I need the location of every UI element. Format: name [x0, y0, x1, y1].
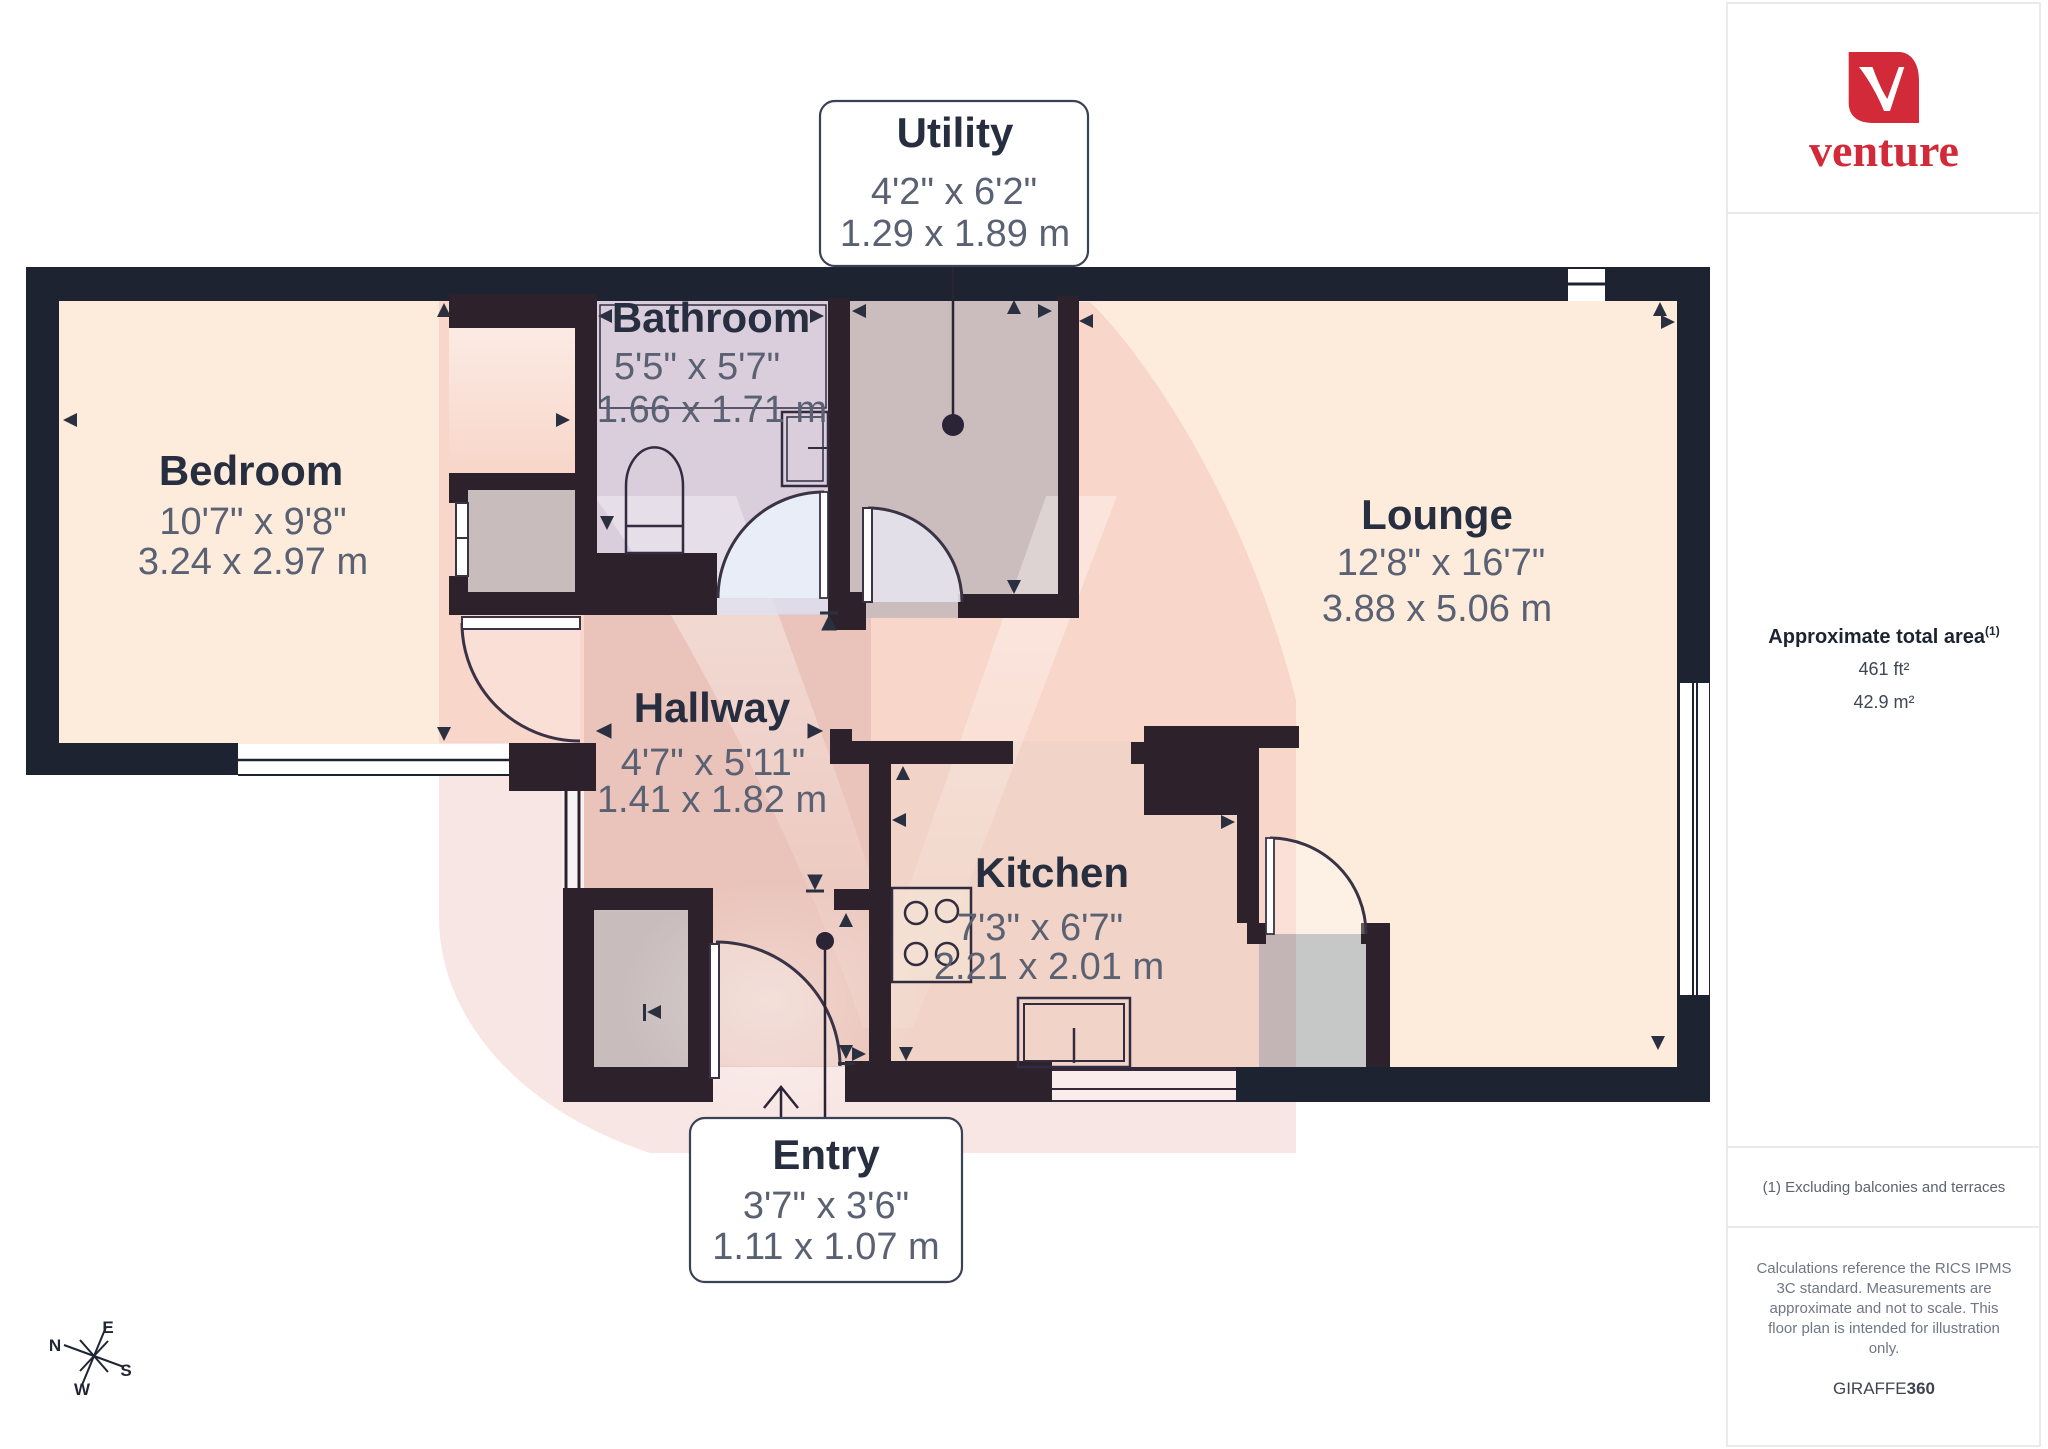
- svg-text:venture: venture: [1809, 125, 1959, 176]
- svg-text:Calculations reference the RIC: Calculations reference the RICS IPMS: [1756, 1260, 2011, 1277]
- svg-text:3C standard. Measurements are: 3C standard. Measurements are: [1776, 1280, 1991, 1297]
- svg-text:GIRAFFE360: GIRAFFE360: [1833, 1379, 1935, 1398]
- svg-text:1.29 x 1.89 m: 1.29 x 1.89 m: [840, 213, 1070, 255]
- svg-text:Approximate total area(1): Approximate total area(1): [1768, 624, 1999, 648]
- svg-text:E: E: [102, 1318, 113, 1337]
- svg-text:4'7" x 5'11": 4'7" x 5'11": [621, 742, 805, 784]
- svg-text:Hallway: Hallway: [634, 684, 791, 731]
- svg-text:Entry: Entry: [772, 1131, 880, 1178]
- svg-text:3'7" x 3'6": 3'7" x 3'6": [743, 1185, 909, 1227]
- svg-text:W: W: [74, 1380, 91, 1399]
- svg-text:12'8" x 16'7": 12'8" x 16'7": [1337, 542, 1545, 584]
- svg-text:461 ft²: 461 ft²: [1858, 659, 1909, 679]
- svg-text:approximate and not to scale.: approximate and not to scale. This: [1769, 1300, 1998, 1317]
- svg-text:2.21 x 2.01 m: 2.21 x 2.01 m: [934, 946, 1164, 988]
- svg-text:5'5" x 5'7": 5'5" x 5'7": [614, 346, 780, 388]
- svg-text:Kitchen: Kitchen: [975, 849, 1129, 896]
- svg-text:3.24 x 2.97 m: 3.24 x 2.97 m: [138, 541, 368, 583]
- svg-text:(1) Excluding balconies and te: (1) Excluding balconies and terraces: [1763, 1179, 2006, 1196]
- svg-text:10'7" x 9'8": 10'7" x 9'8": [159, 501, 346, 543]
- svg-text:floor plan is intended for ill: floor plan is intended for illustration: [1768, 1320, 2000, 1337]
- svg-text:1.11 x 1.07 m: 1.11 x 1.07 m: [712, 1226, 939, 1268]
- svg-text:Lounge: Lounge: [1361, 491, 1513, 538]
- svg-text:7'3" x 6'7": 7'3" x 6'7": [957, 907, 1123, 949]
- svg-text:S: S: [120, 1361, 131, 1380]
- svg-text:N: N: [49, 1336, 61, 1355]
- svg-text:1.41 x 1.82 m: 1.41 x 1.82 m: [597, 779, 827, 821]
- svg-text:only.: only.: [1869, 1340, 1900, 1357]
- svg-text:1.66 x 1.71 m: 1.66 x 1.71 m: [597, 389, 827, 431]
- svg-text:4'2" x 6'2": 4'2" x 6'2": [871, 171, 1037, 213]
- svg-text:Utility: Utility: [897, 109, 1014, 156]
- svg-text:42.9 m²: 42.9 m²: [1853, 692, 1914, 712]
- svg-text:Bathroom: Bathroom: [612, 294, 810, 341]
- svg-text:3.88 x 5.06 m: 3.88 x 5.06 m: [1322, 588, 1552, 630]
- svg-text:Bedroom: Bedroom: [159, 447, 343, 494]
